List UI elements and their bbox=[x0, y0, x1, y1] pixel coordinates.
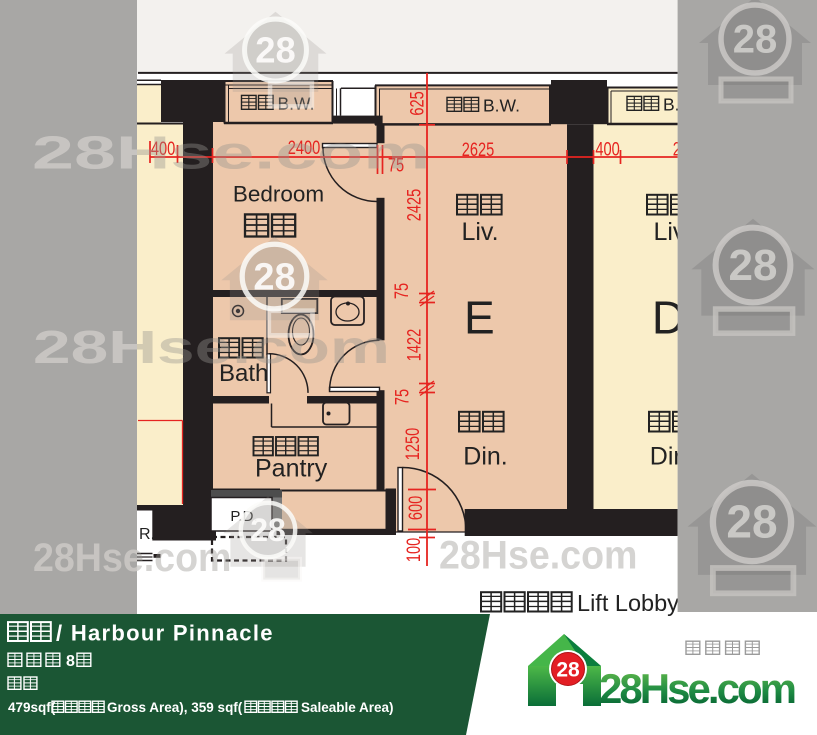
svg-text:Lift Lobby: Lift Lobby bbox=[577, 590, 679, 616]
svg-text:400: 400 bbox=[595, 138, 619, 161]
svg-text:Saleable Area): Saleable Area) bbox=[301, 700, 394, 715]
svg-text:625: 625 bbox=[406, 91, 429, 115]
svg-text:28Hse.com: 28Hse.com bbox=[599, 665, 797, 712]
svg-text:E: E bbox=[464, 292, 495, 344]
svg-text:B.W.: B.W. bbox=[483, 96, 520, 116]
svg-text:1422: 1422 bbox=[403, 329, 426, 362]
svg-text:Bedroom: Bedroom bbox=[233, 182, 324, 207]
svg-text:28: 28 bbox=[726, 496, 777, 548]
svg-text:28: 28 bbox=[733, 18, 778, 62]
svg-text:75: 75 bbox=[391, 389, 414, 405]
svg-text:100: 100 bbox=[402, 538, 425, 562]
svg-text:479sqf(: 479sqf( bbox=[8, 700, 56, 715]
svg-text:Gross Area), 359 sqf(: Gross Area), 359 sqf( bbox=[107, 700, 243, 715]
svg-text:2425: 2425 bbox=[403, 189, 426, 222]
svg-text:28: 28 bbox=[253, 256, 295, 298]
svg-text:Din.: Din. bbox=[463, 443, 507, 471]
svg-text:28Hse.com: 28Hse.com bbox=[439, 533, 637, 577]
svg-text:2625: 2625 bbox=[462, 138, 495, 161]
svg-text:Pantry: Pantry bbox=[255, 455, 328, 483]
svg-text:28: 28 bbox=[556, 659, 580, 682]
svg-text:1250: 1250 bbox=[401, 428, 424, 461]
svg-text:600: 600 bbox=[404, 496, 427, 520]
svg-text:28: 28 bbox=[255, 29, 295, 70]
svg-text:8: 8 bbox=[66, 653, 75, 670]
svg-text:28: 28 bbox=[729, 241, 778, 290]
svg-text:Liv.: Liv. bbox=[461, 218, 498, 246]
svg-text:/ Harbour Pinnacle: / Harbour Pinnacle bbox=[56, 621, 274, 646]
svg-text:75: 75 bbox=[390, 283, 413, 299]
svg-text:28: 28 bbox=[250, 512, 286, 548]
